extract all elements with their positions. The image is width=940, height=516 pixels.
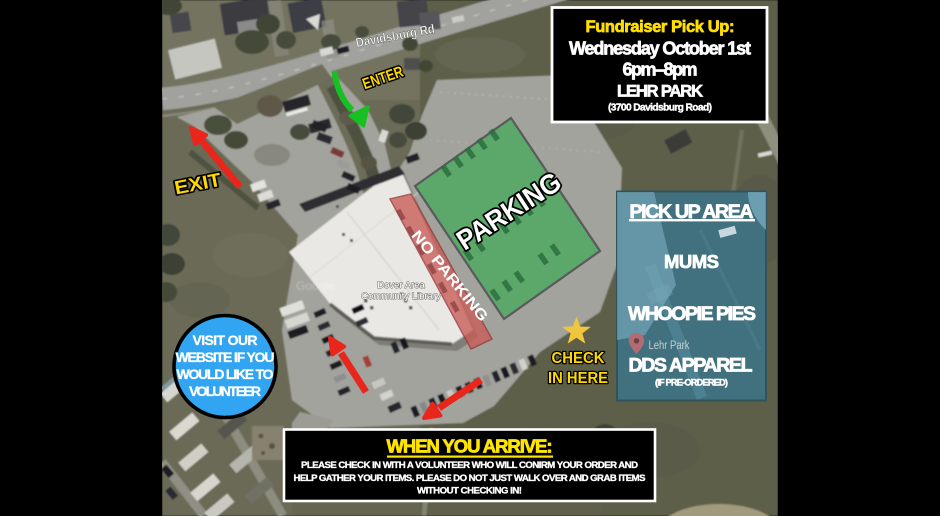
svg-text:IN HERE: IN HERE bbox=[548, 370, 608, 387]
svg-text:MUMS: MUMS bbox=[664, 251, 719, 272]
svg-text:6pm–8pm: 6pm–8pm bbox=[623, 60, 698, 80]
svg-text:WOULD LIKE TO: WOULD LIKE TO bbox=[177, 366, 274, 382]
svg-text:VISIT OUR: VISIT OUR bbox=[193, 332, 258, 348]
svg-text:DDS APPAREL: DDS APPAREL bbox=[629, 355, 753, 377]
svg-text:Dover Area: Dover Area bbox=[377, 280, 425, 291]
svg-text:Fundraiser Pick Up:: Fundraiser Pick Up: bbox=[586, 18, 735, 36]
svg-text:Wednesday October 1st: Wednesday October 1st bbox=[569, 39, 751, 59]
svg-text:HELP GATHER YOUR ITEMS. PLEASE: HELP GATHER YOUR ITEMS. PLEASE DO NOT JU… bbox=[294, 473, 647, 484]
svg-text:Community Library: Community Library bbox=[361, 291, 441, 302]
svg-text:VOLUNTEER: VOLUNTEER bbox=[189, 383, 261, 399]
svg-text:CHECK: CHECK bbox=[552, 350, 606, 367]
svg-text:Google: Google bbox=[296, 279, 335, 293]
svg-text:(3700 Davidsburg Road): (3700 Davidsburg Road) bbox=[608, 103, 712, 114]
svg-text:Lehr Park: Lehr Park bbox=[649, 340, 690, 352]
svg-text:PLEASE CHECK IN WITH A VOLUNTE: PLEASE CHECK IN WITH A VOLUNTEER WHO WIL… bbox=[301, 460, 638, 471]
svg-text:LEHR PARK: LEHR PARK bbox=[617, 83, 703, 101]
svg-text:(IF PRE-ORDERED): (IF PRE-ORDERED) bbox=[655, 378, 728, 388]
svg-text:WHOOPIE PIES: WHOOPIE PIES bbox=[628, 303, 756, 325]
svg-text:WITHOUT CHECKING IN!: WITHOUT CHECKING IN! bbox=[417, 486, 522, 497]
svg-text:WHEN YOU ARRIVE:: WHEN YOU ARRIVE: bbox=[387, 436, 553, 457]
svg-text:WEBSITE IF YOU: WEBSITE IF YOU bbox=[176, 349, 275, 365]
